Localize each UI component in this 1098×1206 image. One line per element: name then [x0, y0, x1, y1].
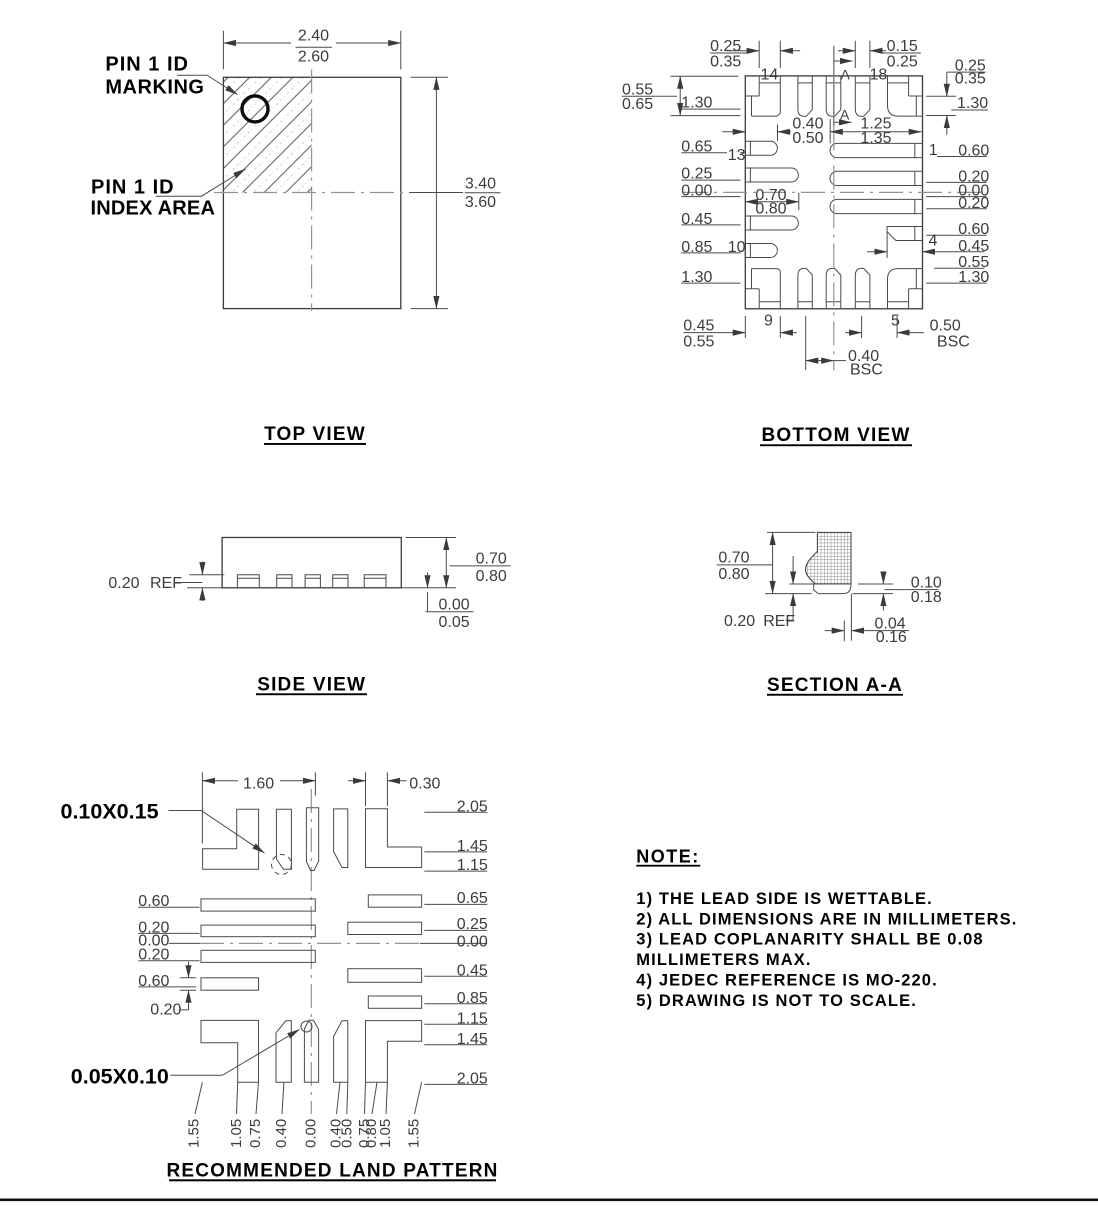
svg-text:A: A: [841, 67, 851, 83]
svg-text:TOP VIEW: TOP VIEW: [264, 424, 366, 445]
svg-text:0.10X0.15: 0.10X0.15: [61, 800, 159, 824]
svg-text:BSC: BSC: [937, 334, 970, 351]
svg-text:0.45: 0.45: [958, 238, 989, 255]
svg-text:1.05: 1.05: [377, 1119, 394, 1148]
svg-text:0.20: 0.20: [150, 1001, 181, 1018]
svg-text:PIN 1 ID: PIN 1 ID: [91, 176, 175, 198]
svg-text:4: 4: [929, 233, 938, 250]
svg-text:0.50: 0.50: [792, 130, 823, 147]
svg-text:0.00: 0.00: [302, 1119, 319, 1148]
svg-text:0.65: 0.65: [622, 96, 653, 113]
svg-text:3) LEAD COPLANARITY SHALL BE 0: 3) LEAD COPLANARITY SHALL BE 0.08: [636, 931, 983, 949]
svg-text:0.70: 0.70: [718, 549, 749, 566]
svg-text:INDEX AREA: INDEX AREA: [91, 198, 216, 220]
svg-text:0.50: 0.50: [338, 1119, 355, 1148]
svg-text:0.80: 0.80: [476, 568, 507, 585]
svg-text:0.15: 0.15: [887, 38, 918, 55]
svg-text:1.35: 1.35: [860, 130, 891, 147]
svg-text:1) THE LEAD SIDE IS WETTABLE.: 1) THE LEAD SIDE IS WETTABLE.: [636, 890, 933, 908]
svg-text:0.55: 0.55: [683, 334, 714, 351]
svg-text:BOTTOM VIEW: BOTTOM VIEW: [761, 425, 910, 446]
svg-text:RECOMMENDED LAND PATTERN: RECOMMENDED LAND PATTERN: [166, 1161, 498, 1182]
svg-text:0.20: 0.20: [108, 575, 139, 592]
svg-text:0.50: 0.50: [930, 318, 961, 335]
svg-text:5: 5: [891, 313, 900, 330]
svg-text:MILLIMETERS MAX.: MILLIMETERS MAX.: [636, 951, 811, 969]
svg-text:1.55: 1.55: [185, 1119, 202, 1148]
svg-text:0.30: 0.30: [409, 776, 440, 793]
svg-text:0.25: 0.25: [887, 54, 918, 71]
svg-text:0.18: 0.18: [911, 589, 942, 606]
svg-text:MARKING: MARKING: [105, 76, 204, 98]
svg-text:0.40: 0.40: [273, 1119, 290, 1148]
svg-text:NOTE:: NOTE:: [636, 847, 700, 867]
svg-text:3.40: 3.40: [465, 175, 496, 192]
svg-text:0.45: 0.45: [457, 963, 488, 980]
svg-text:0.35: 0.35: [955, 71, 986, 88]
svg-text:1.15: 1.15: [457, 857, 488, 874]
svg-text:5) DRAWING IS NOT TO SCALE.: 5) DRAWING IS NOT TO SCALE.: [636, 992, 917, 1010]
svg-text:18: 18: [870, 67, 888, 84]
svg-text:PIN 1 ID: PIN 1 ID: [105, 54, 189, 76]
svg-text:3.60: 3.60: [465, 194, 496, 211]
svg-text:2.40: 2.40: [298, 28, 329, 45]
svg-text:1: 1: [929, 142, 938, 159]
svg-text:2.05: 2.05: [457, 1071, 488, 1088]
svg-text:2.05: 2.05: [457, 798, 488, 815]
svg-text:REF: REF: [150, 575, 182, 592]
svg-text:REF: REF: [763, 613, 795, 630]
svg-text:0.80: 0.80: [718, 566, 749, 583]
svg-text:0.16: 0.16: [876, 629, 907, 646]
svg-text:1.45: 1.45: [457, 1031, 488, 1048]
svg-text:9: 9: [764, 313, 773, 330]
svg-text:SIDE VIEW: SIDE VIEW: [257, 675, 366, 696]
svg-text:0.80: 0.80: [755, 201, 786, 218]
svg-text:1.30: 1.30: [957, 95, 988, 112]
svg-text:1.05: 1.05: [228, 1119, 245, 1148]
svg-text:0.35: 0.35: [710, 54, 741, 71]
svg-text:0.05X0.10: 0.05X0.10: [71, 1065, 169, 1089]
svg-text:1.15: 1.15: [457, 1010, 488, 1027]
svg-text:1.45: 1.45: [457, 838, 488, 855]
svg-text:0.20: 0.20: [724, 613, 755, 630]
svg-text:1.55: 1.55: [406, 1119, 423, 1148]
svg-text:SECTION A-A: SECTION A-A: [767, 675, 903, 696]
svg-text:A: A: [840, 107, 850, 123]
svg-text:0.00: 0.00: [457, 933, 488, 950]
svg-text:0.85: 0.85: [457, 990, 488, 1007]
svg-text:0.45: 0.45: [683, 318, 714, 335]
svg-text:0.70: 0.70: [476, 551, 507, 568]
svg-text:13: 13: [728, 147, 746, 164]
svg-text:0.75: 0.75: [247, 1119, 264, 1148]
svg-text:0.00: 0.00: [439, 597, 470, 614]
svg-text:4) JEDEC REFERENCE IS MO-220.: 4) JEDEC REFERENCE IS MO-220.: [636, 972, 937, 990]
svg-text:1.60: 1.60: [243, 776, 274, 793]
svg-text:0.25: 0.25: [710, 38, 741, 55]
svg-text:BSC: BSC: [850, 361, 883, 378]
svg-text:2.60: 2.60: [298, 48, 329, 65]
svg-text:14: 14: [761, 67, 779, 84]
svg-text:2) ALL DIMENSIONS ARE IN MILLI: 2) ALL DIMENSIONS ARE IN MILLIMETERS.: [636, 910, 1017, 928]
svg-text:0.05: 0.05: [439, 614, 470, 631]
